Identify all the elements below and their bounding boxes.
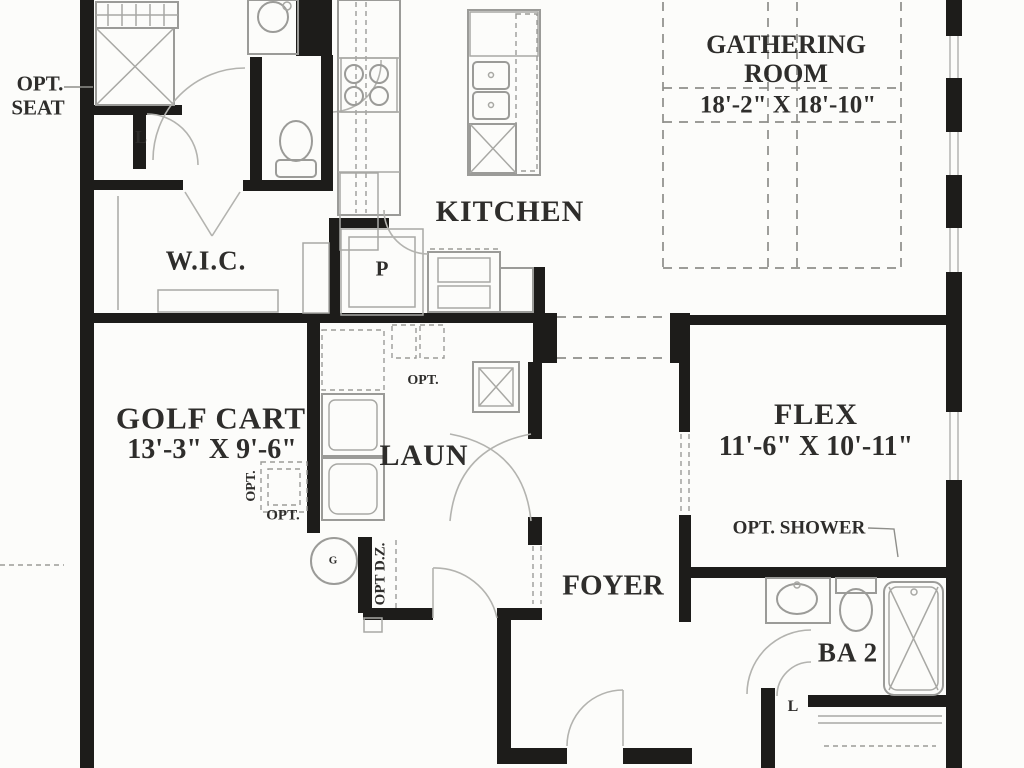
opt-laundry-sink — [473, 362, 519, 412]
wic-double-doors — [185, 192, 240, 236]
room-label-golf-cart: GOLF CART — [116, 403, 306, 434]
shower-with-opt-seat — [96, 2, 178, 105]
main-interior-walls — [80, 267, 946, 363]
bath2-vanity-sink — [766, 578, 830, 623]
room-label-bath2: BA 2 — [818, 640, 878, 667]
linen-door-arc-lower — [777, 662, 811, 696]
exterior-wall-left — [80, 0, 94, 768]
opt-seat-label-line2: SEAT — [11, 98, 64, 119]
exterior-wall-right-with-windows — [946, 0, 962, 768]
room-label-wic: W.I.C. — [166, 248, 247, 275]
pantry-label: P — [376, 259, 389, 280]
kitchen-island-with-sinks — [468, 10, 540, 175]
opt-shower-leader-line — [868, 528, 898, 557]
kitchen-counter-right — [500, 268, 533, 312]
foyer-optional-opening-dashes — [533, 546, 541, 604]
flex-optional-wall-dashes — [681, 434, 689, 512]
linen-label-upper: L — [135, 128, 147, 146]
water-closet-toilet — [276, 121, 316, 177]
room-dims-flex: 11'-6" X 10'-11" — [719, 433, 913, 461]
gas-meter-label: G — [329, 556, 338, 567]
room-label-gathering-line2: ROOM — [744, 61, 828, 87]
washer-dryer — [322, 330, 384, 520]
room-label-gathering-line1: GATHERING — [706, 32, 866, 58]
bathtub-opt-shower — [884, 582, 943, 695]
opt-label-laundry: OPT. — [407, 374, 438, 388]
opt-upper-cabinets — [392, 325, 444, 358]
opt-label-golf-cart-vertical: OPT. — [245, 470, 259, 501]
room-label-flex: FLEX — [774, 400, 858, 430]
foyer-walls — [497, 362, 692, 764]
cooktop — [341, 58, 397, 112]
front-door-arc — [567, 690, 623, 746]
opt-seat-label-line1: OPT. — [17, 74, 64, 95]
room-label-laundry: LAUN — [379, 441, 468, 471]
pantry-door-arc — [384, 210, 428, 254]
opt-label-golf-cart-horizontal: OPT. — [266, 509, 299, 524]
room-dims-gathering: 18'-2" X 18'-10" — [700, 93, 876, 118]
kitchen-counter-left — [338, 0, 400, 215]
opt-golf-cart-item — [261, 462, 307, 512]
floor-plan: OPT. SEAT GATHERING ROOM 18'-2" X 18'-10… — [0, 0, 1024, 768]
owners-bath-door-arc — [153, 60, 381, 160]
owners-vanity-sink — [248, 0, 298, 54]
bath2-toilet — [836, 578, 876, 631]
opt-drop-zone-label: OPT D.Z. — [374, 543, 389, 606]
refrigerator — [428, 249, 500, 312]
opt-shower-label: OPT. SHOWER — [733, 519, 866, 538]
bedroom2-closet-shelves — [818, 716, 942, 746]
linen-label-lower: L — [788, 699, 799, 715]
room-label-foyer: FOYER — [562, 572, 664, 601]
hall-door-arc — [433, 568, 497, 618]
wall-oven — [340, 173, 378, 250]
gathering-entry-opening-dashes — [557, 317, 668, 358]
room-dims-golf-cart: 13'-3" X 9'-6" — [127, 436, 297, 464]
room-label-kitchen: KITCHEN — [436, 197, 585, 227]
